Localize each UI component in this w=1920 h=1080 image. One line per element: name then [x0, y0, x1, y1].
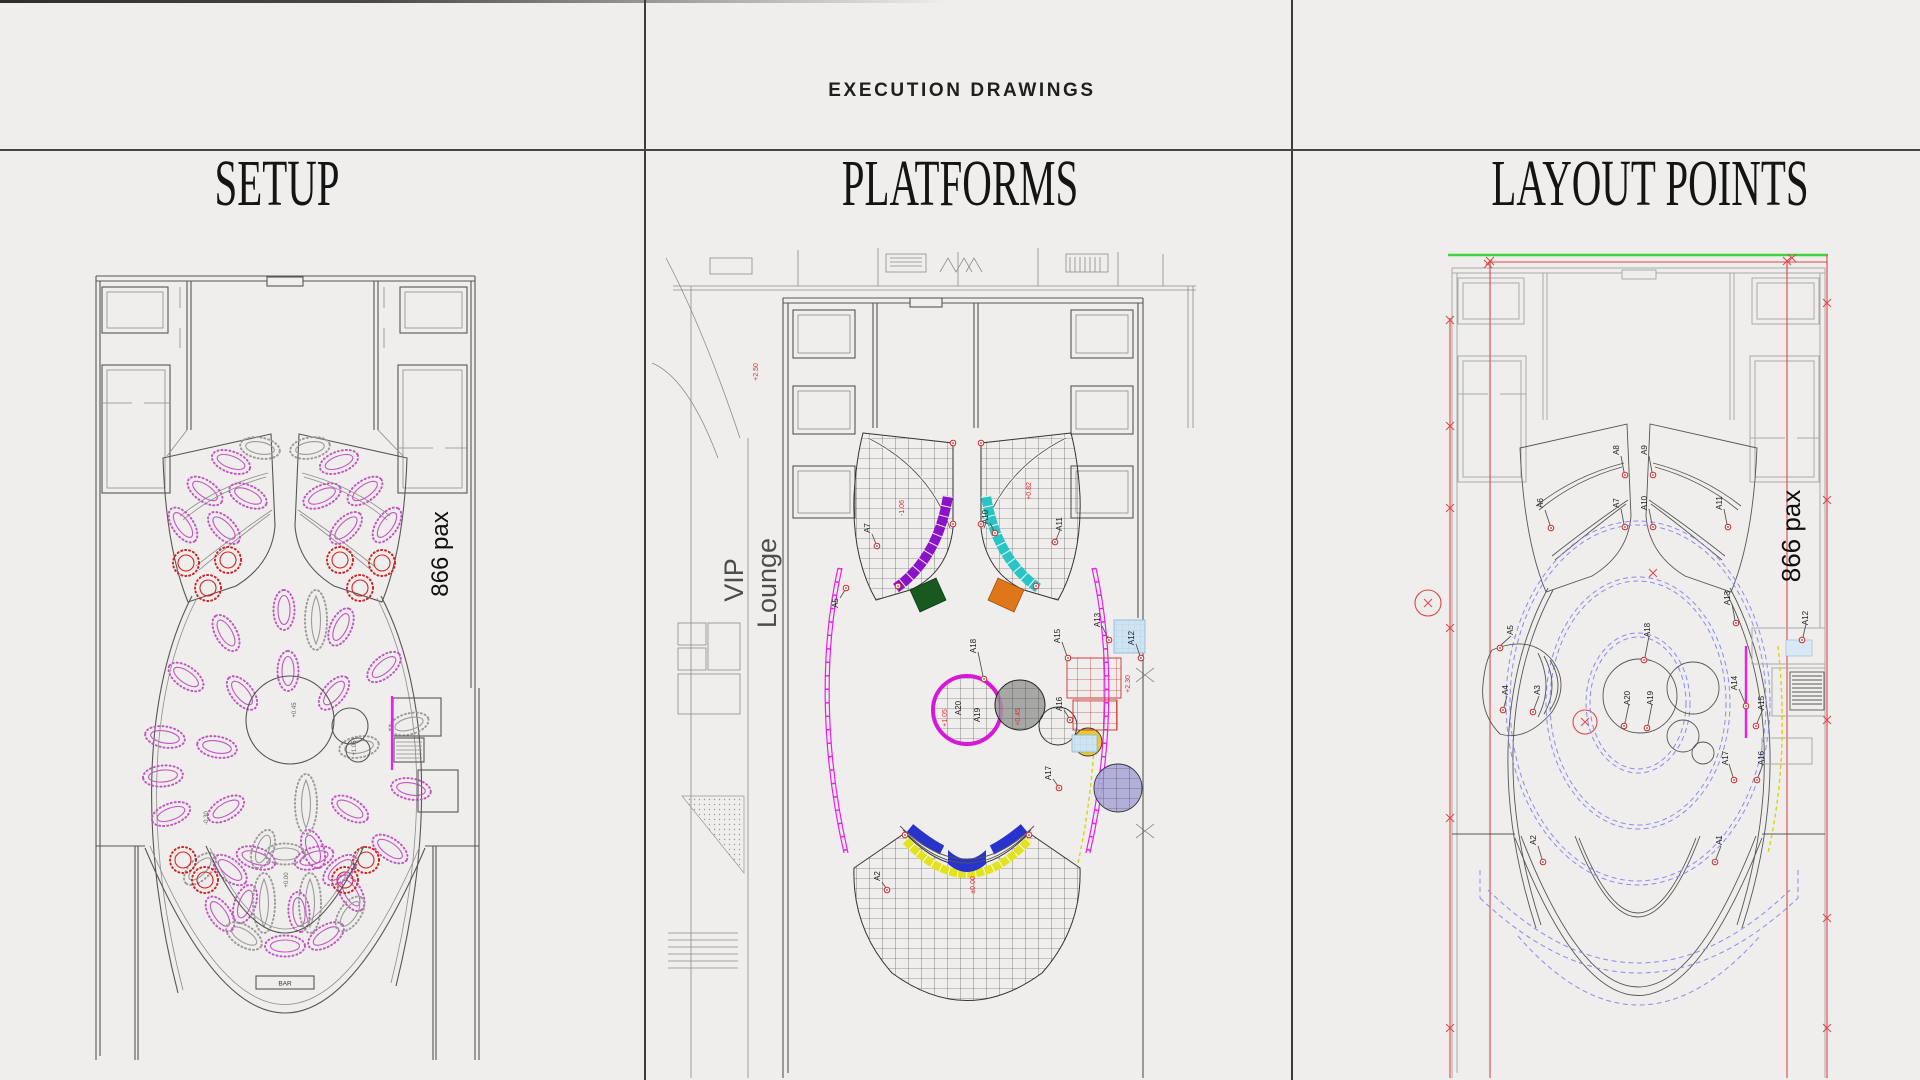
point-label: A13	[1723, 590, 1732, 605]
level-label: +1.05	[942, 709, 949, 727]
point-label: A15	[1757, 695, 1766, 710]
point-label: A10	[981, 509, 990, 524]
guide-lines	[1415, 254, 1831, 1078]
point-label: A4	[1501, 685, 1510, 695]
point-label: A9	[1640, 445, 1649, 455]
point-label: A11	[1055, 517, 1064, 531]
building-outline	[96, 276, 475, 1060]
point-label: A13	[1093, 612, 1102, 627]
bottom-fan-platform	[854, 826, 1080, 1001]
point-label: A2	[1529, 835, 1538, 845]
page-title: EXECUTION DRAWINGS	[812, 80, 1112, 102]
blue-dashed-ellipses	[1480, 521, 1798, 1005]
point-label: A7	[1612, 498, 1621, 508]
central-platforms	[933, 620, 1145, 812]
level-label: -0.30	[204, 811, 210, 825]
point-label: A10	[1640, 495, 1649, 510]
panel-title-platforms: PLATFORMS	[774, 152, 1146, 216]
point-label: A5	[831, 598, 840, 608]
point-label: A17	[1721, 750, 1730, 765]
point-label: A6	[1536, 498, 1545, 508]
stage-annex	[392, 688, 479, 1060]
red-grid-platform	[1073, 700, 1117, 730]
level-label: +0.45	[292, 702, 298, 718]
fan-outlines	[1452, 424, 1825, 996]
stage-annex	[1746, 628, 1825, 853]
bar-label: BAR	[278, 981, 292, 988]
layout-points-drawing: A6 A8 A9 A7 A10 A11 A13 A12 A5 A4 A3 A18…	[1400, 198, 1920, 1078]
circled-x-marker	[1415, 590, 1441, 616]
level-label: -1.06	[899, 500, 906, 516]
point-label: A17	[1044, 765, 1053, 780]
vip-lounge-label-line1: VIP	[719, 558, 749, 602]
point-label: A20	[1623, 690, 1632, 705]
point-label: A1	[1715, 835, 1724, 845]
fan-sections	[163, 430, 407, 602]
building-outline	[1452, 268, 1825, 1078]
level-label: +1.05	[352, 740, 358, 756]
point-label: A19	[973, 707, 982, 722]
capacity-label: 866 pax	[1776, 490, 1806, 583]
setup-floorplan-drawing: BAR +0.45 +1.05 -0.30 +0.00 866 pax	[88, 248, 538, 1066]
slide: EXECUTION DRAWINGS SETUP PLATFORMS LAYOU…	[0, 0, 1920, 1080]
level-label: +0.82	[1026, 482, 1033, 500]
level-label: ±0.00	[970, 876, 977, 894]
point-label: A2	[873, 871, 882, 881]
point-label: A11	[1715, 496, 1724, 510]
point-label: A18	[969, 638, 978, 653]
top-edge-line	[0, 0, 950, 3]
point-label: A18	[1643, 622, 1652, 637]
level-label: +0.45	[1015, 708, 1022, 726]
point-label: A20	[954, 700, 963, 715]
capacity-label: 866 pax	[427, 511, 454, 596]
point-label: A7	[863, 523, 872, 533]
point-label: A3	[1533, 685, 1542, 695]
panel-title-setup: SETUP	[91, 152, 463, 216]
point-label: A16	[1757, 750, 1766, 765]
level-label: +2.30	[1125, 675, 1132, 693]
vip-lounge-label-line2: Lounge	[752, 538, 782, 628]
circled-x-marker	[1573, 710, 1597, 734]
point-label: A5	[1506, 625, 1515, 635]
point-label: A15	[1053, 628, 1062, 643]
rooms	[102, 287, 467, 493]
level-label: +0.00	[284, 872, 290, 888]
platforms-floorplan-drawing: A5 A7 A11 A13 A15 A18 A12 A16 A17 A19 A2…	[648, 228, 1208, 1078]
column-divider-2	[1291, 0, 1293, 1080]
point-label: A19	[1646, 690, 1655, 705]
point-label: A12	[1127, 630, 1136, 645]
column-divider-1	[644, 0, 646, 1080]
point-labels: A6 A8 A9 A7 A10 A11 A13 A12 A5 A4 A3 A18…	[1497, 445, 1810, 865]
platform-fans	[854, 433, 1080, 612]
point-label: A16	[1055, 696, 1064, 711]
point-label: A12	[1801, 610, 1810, 625]
point-label: A8	[1612, 445, 1621, 455]
level-label: +2.50	[753, 363, 760, 381]
point-label: A14	[1730, 675, 1739, 690]
red-grid-platform	[1067, 658, 1121, 698]
